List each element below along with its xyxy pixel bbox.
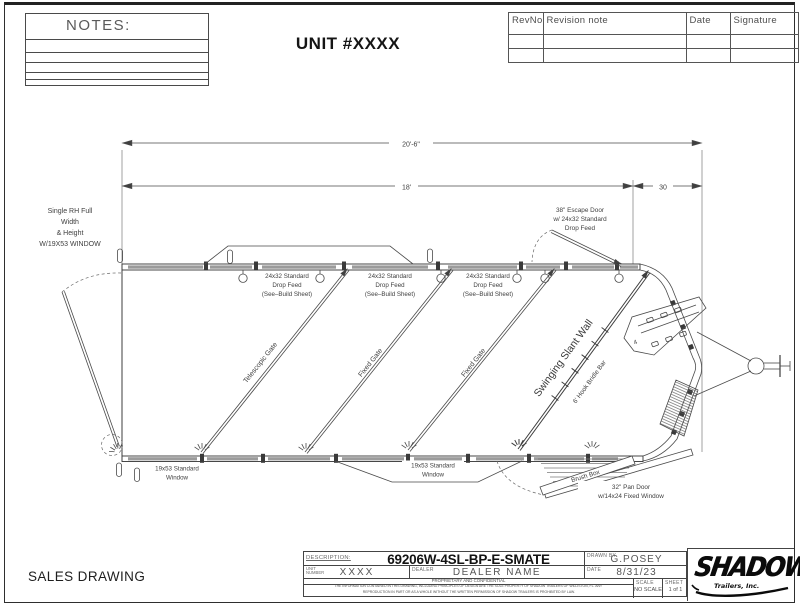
legal-text-2: REPRODUCTION IN PART OR AS A WHOLE WITHO… (362, 591, 574, 595)
bridle-bar-label: 6' Hook Bridle Bar (572, 359, 608, 405)
svg-text:& Height: & Height (57, 230, 84, 237)
trailer-plan-drawing: 20'-6" 18' 30 (0, 0, 800, 608)
confidential-note: PROPRIETARY AND CONFIDENTIAL (432, 579, 506, 583)
gate-fixed-2-label: Fixed Gate (460, 347, 487, 378)
trailer-bottom-wall (122, 454, 643, 463)
svg-text:Drop Feed: Drop Feed (272, 282, 302, 289)
notes-rule (26, 39, 208, 40)
svg-text:(See–Build Sheet): (See–Build Sheet) (262, 291, 312, 298)
description-label: DESCRIPTION: (306, 555, 351, 561)
svg-text:19x53 Standard: 19x53 Standard (155, 466, 199, 473)
rear-door (62, 273, 123, 456)
svg-text:w/14x24 Fixed Window: w/14x24 Fixed Window (597, 493, 664, 500)
saddle-rack-count: 4 (633, 339, 639, 347)
coupler-jack (748, 358, 764, 374)
rev-header-signature: Signature (730, 13, 798, 35)
svg-text:(See–Build Sheet): (See–Build Sheet) (463, 291, 513, 298)
notes-title: NOTES: (66, 17, 131, 34)
svg-text:Window: Window (422, 472, 445, 479)
wheel-well-top (205, 246, 413, 264)
sales-drawing-label: SALES DRAWING (28, 569, 145, 584)
rev-row-empty (509, 35, 799, 49)
svg-text:Window: Window (166, 475, 189, 482)
dimension-extension-lines (122, 150, 702, 461)
dim-nose-label: 30 (659, 185, 667, 192)
pan-door-label: 32" Pan Door w/14x24 Fixed Window (578, 481, 690, 500)
sheet-label: SHEET (665, 580, 683, 586)
svg-text:w/ 24x32 Standard: w/ 24x32 Standard (552, 216, 607, 223)
revision-table: RevNo Revision note Date Signature (508, 12, 799, 63)
title-block: DESCRIPTION: 69206W-4SL-BP-E-SMATE DRAWN… (303, 551, 687, 597)
window-label-2: 19x53 Standard Window (402, 461, 464, 480)
rev-header-date: Date (686, 13, 730, 35)
dealer-value: DEALER NAME (410, 567, 584, 578)
shadow-logo-box: SHADOW Trailers, Inc. (687, 548, 794, 601)
svg-text:Drop Feed: Drop Feed (375, 282, 405, 289)
scale-label: SCALE (636, 580, 654, 586)
dim-floor: 18' (123, 181, 632, 192)
svg-text:24x32 Standard: 24x32 Standard (265, 273, 309, 280)
svg-text:W/19X53 WINDOW: W/19X53 WINDOW (39, 241, 101, 248)
drawing-sheet: 20'-6" 18' 30 (0, 0, 800, 608)
svg-text:Drop Feed: Drop Feed (565, 225, 596, 232)
description-value: 69206W-4SL-BP-E-SMATE (356, 552, 581, 567)
sheet-value: 1 of 1 (663, 587, 688, 593)
unit-title: UNIT #XXXX (248, 34, 448, 54)
notes-rule (26, 72, 208, 73)
dim-floor-label: 18' (402, 185, 411, 192)
svg-text:24x32 Standard: 24x32 Standard (368, 273, 412, 280)
trailer-top-wall (122, 262, 640, 271)
svg-text:38" Escape Door: 38" Escape Door (556, 207, 605, 214)
rear-door-label: Single RH Full Width & Height W/19X53 WI… (39, 208, 101, 248)
legal-text-1: THE INFORMATION CONTAINED IN THIS DRAWIN… (335, 585, 603, 589)
window-label-1: 19x53 Standard Window (146, 464, 208, 483)
drop-feed-label-3: 24x32 Standard Drop Feed (See–Build Shee… (463, 273, 513, 298)
gate-telescopic-label: Telescopic Gate (243, 341, 280, 384)
drop-feed-label-1: 24x32 Standard Drop Feed (See–Build Shee… (262, 273, 312, 298)
svg-text:19x53 Standard: 19x53 Standard (411, 463, 455, 470)
notes-rule (26, 62, 208, 63)
scale-value: NO SCALE (634, 587, 662, 593)
drawn-by-value: G.POSEY (585, 554, 688, 565)
rev-header-revno: RevNo (509, 13, 544, 35)
rev-row-empty (509, 49, 799, 63)
svg-text:Single RH Full: Single RH Full (48, 208, 93, 215)
notes-rule (26, 79, 208, 80)
rev-header-note: Revision note (543, 13, 686, 35)
dim-overall: 20'-6" (123, 138, 701, 149)
nose-outline (640, 264, 702, 461)
slant-wall (512, 270, 651, 451)
dim-nose: 30 (634, 181, 701, 192)
svg-text:Drop Feed: Drop Feed (473, 282, 503, 289)
tongue-coupler (694, 332, 790, 396)
dim-overall-label: 20'-6" (402, 141, 420, 148)
svg-text:32" Pan Door: 32" Pan Door (612, 484, 651, 491)
saddle-rack: 4 (624, 297, 706, 355)
svg-text:(See–Build Sheet): (See–Build Sheet) (365, 291, 415, 298)
svg-text:24x32 Standard: 24x32 Standard (466, 273, 510, 280)
escape-door-label: 38" Escape Door w/ 24x32 Standard Drop F… (552, 207, 607, 232)
notes-rule (26, 52, 208, 53)
logo-swoosh (688, 549, 795, 602)
date-value: 8/31/23 (585, 567, 688, 578)
escape-door (532, 230, 622, 267)
drop-feed-label-2: 24x32 Standard Drop Feed (See–Build Shee… (365, 273, 415, 298)
svg-text:Width: Width (61, 219, 79, 226)
notes-box: NOTES: (25, 13, 209, 86)
step-mat (660, 380, 698, 436)
unit-number-value: XXXX (322, 567, 392, 578)
